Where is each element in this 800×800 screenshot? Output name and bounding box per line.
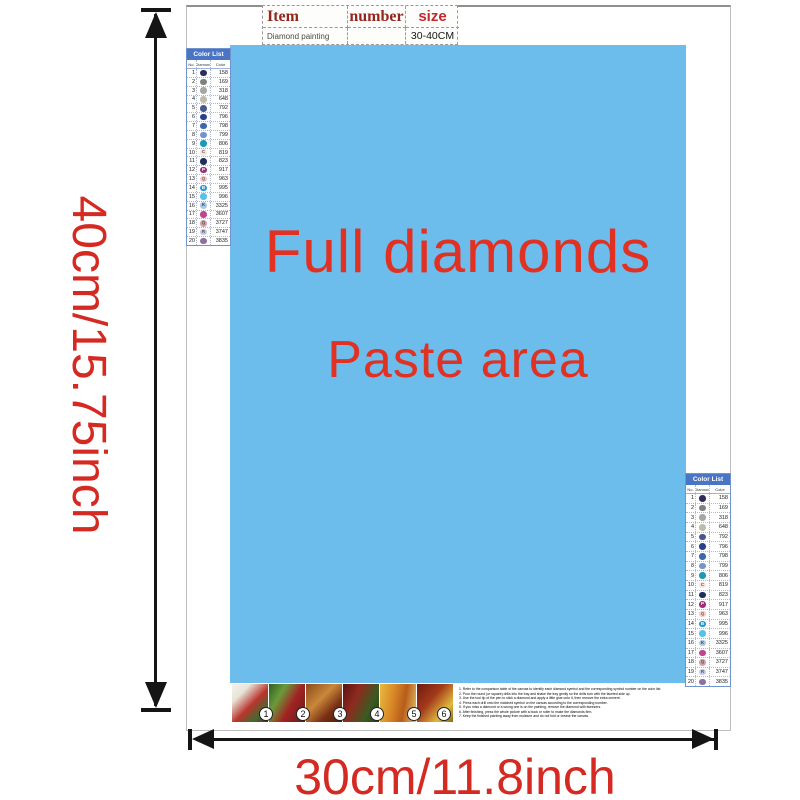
- color-list-row: 3318: [686, 513, 730, 523]
- dmc-color-code: 996: [211, 194, 230, 200]
- color-list-row: 6796: [187, 113, 230, 122]
- diamond-dot-icon: R: [699, 669, 706, 676]
- dmc-color-code: 3325: [211, 203, 230, 209]
- diamond-dot-icon: Q: [699, 659, 706, 666]
- diamond-dot-icon: [699, 650, 706, 657]
- color-row-number: 3: [187, 87, 197, 95]
- color-list-col-color: Color: [211, 60, 230, 68]
- diamond-color-swatch: [197, 104, 211, 112]
- dmc-color-code: 792: [211, 105, 230, 111]
- diamond-color-swatch: R: [696, 668, 710, 677]
- color-row-number: 12: [187, 166, 197, 174]
- color-row-number: 17: [187, 211, 197, 219]
- color-row-number: 7: [187, 122, 197, 130]
- diamond-dot-icon: B: [200, 185, 207, 192]
- diamond-dot-icon: [699, 495, 706, 502]
- dmc-color-code: 995: [710, 621, 730, 627]
- color-list-row: 3318: [187, 87, 230, 96]
- color-row-number: 15: [686, 629, 696, 638]
- color-row-number: 7: [686, 552, 696, 561]
- color-list-row: 15996: [187, 193, 230, 202]
- diamond-dot-icon: B: [699, 621, 706, 628]
- diamond-color-swatch: P: [197, 166, 211, 174]
- color-list-col-color: Color: [710, 485, 730, 493]
- color-list-row: 18Q3727: [187, 219, 230, 228]
- diamond-color-swatch: Q: [197, 175, 211, 183]
- diamond-dot-icon: [699, 592, 706, 599]
- dmc-color-code: 799: [710, 563, 730, 569]
- diamond-dot-icon: [200, 70, 207, 77]
- diamond-color-swatch: [696, 552, 710, 561]
- diamond-color-swatch: [197, 122, 211, 130]
- diamond-color-swatch: K: [197, 202, 211, 210]
- diamond-color-swatch: [696, 677, 710, 686]
- dmc-color-code: 648: [710, 524, 730, 530]
- horizontal-arrow-right-cap: [714, 729, 718, 750]
- paste-area-subtitle: Paste area: [230, 330, 686, 390]
- diamond-color-swatch: [197, 69, 211, 77]
- diamond-color-swatch: [696, 649, 710, 658]
- dmc-color-code: 963: [710, 611, 730, 617]
- vertical-arrow-line: [154, 14, 157, 706]
- color-list-row: 18Q3727: [686, 658, 730, 668]
- dmc-color-code: 169: [211, 79, 230, 85]
- color-list-col-no: No.: [187, 60, 197, 68]
- dmc-color-code: 798: [211, 123, 230, 129]
- step-thumbnail: 5: [380, 684, 416, 722]
- color-list-col-diamond: Diamond: [696, 485, 710, 493]
- diamond-color-swatch: [197, 87, 211, 95]
- color-list-row: 5792: [686, 533, 730, 543]
- diamond-dot-icon: [699, 553, 706, 560]
- dmc-color-code: 318: [211, 88, 230, 94]
- step-number-badge: 6: [437, 707, 451, 721]
- diamond-dot-icon: [200, 79, 207, 86]
- dmc-color-code: 3607: [710, 650, 730, 656]
- step-number-badge: 5: [407, 707, 421, 721]
- color-row-number: 5: [686, 533, 696, 542]
- color-row-number: 19: [686, 668, 696, 677]
- diamond-color-swatch: [197, 78, 211, 86]
- diamond-dot-icon: [699, 505, 706, 512]
- diamond-dot-icon: [699, 524, 706, 531]
- diamond-dot-icon: [699, 514, 706, 521]
- product-image: Full diamonds Paste area Item number siz…: [0, 0, 800, 800]
- diamond-color-swatch: [197, 140, 211, 148]
- dmc-color-code: 963: [211, 176, 230, 182]
- diamond-dot-icon: [200, 96, 207, 103]
- dmc-color-code: 3835: [211, 238, 230, 244]
- color-list-row: 2169: [686, 504, 730, 514]
- item-table-header-size: size: [406, 6, 459, 28]
- color-row-number: 12: [686, 600, 696, 609]
- diamond-color-swatch: C: [696, 581, 710, 590]
- color-list-row: 16K3325: [686, 639, 730, 649]
- step-thumbnail-strip: 123456: [232, 684, 453, 722]
- instruction-text-block: 1. Refer to the comparison table of the …: [459, 687, 668, 719]
- color-list-row: 9806: [686, 571, 730, 581]
- vertical-arrow-bottom-cap: [141, 708, 171, 712]
- color-list-row: 203835: [686, 677, 730, 686]
- color-list-row: 16K3325: [187, 202, 230, 211]
- color-list-row: 14B995: [686, 620, 730, 630]
- color-row-number: 4: [187, 96, 197, 104]
- diamond-color-swatch: K: [696, 639, 710, 648]
- diamond-color-swatch: Q: [696, 658, 710, 667]
- dmc-color-code: 792: [710, 534, 730, 540]
- color-row-number: 9: [686, 571, 696, 580]
- color-row-number: 16: [187, 202, 197, 210]
- step-thumbnail: 1: [232, 684, 268, 722]
- diamond-dot-icon: C: [699, 582, 706, 589]
- step-number-badge: 4: [370, 707, 384, 721]
- step-number-badge: 2: [296, 707, 310, 721]
- diamond-color-swatch: [696, 513, 710, 522]
- diamond-dot-icon: [200, 87, 207, 94]
- color-list-row: 203835: [187, 237, 230, 245]
- color-list-row: 173607: [187, 211, 230, 220]
- diamond-dot-icon: K: [699, 640, 706, 647]
- dmc-color-code: 169: [710, 505, 730, 511]
- color-list-row: 10C819: [187, 149, 230, 158]
- item-table-cell-item: Diamond painting: [263, 28, 348, 44]
- dmc-color-code: 798: [710, 553, 730, 559]
- dmc-color-code: 3727: [211, 220, 230, 226]
- diamond-dot-icon: [699, 679, 706, 686]
- color-list-col-no: No.: [686, 485, 696, 493]
- color-row-number: 11: [187, 157, 197, 165]
- color-row-number: 14: [686, 620, 696, 629]
- dmc-color-code: 917: [710, 602, 730, 608]
- color-list-row: 7798: [686, 552, 730, 562]
- diamond-color-swatch: [696, 562, 710, 571]
- diamond-color-swatch: Q: [696, 610, 710, 619]
- item-table-header-item: Item: [263, 6, 348, 28]
- color-list-row: 9806: [187, 140, 230, 149]
- dmc-color-code: 917: [211, 167, 230, 173]
- diamond-dot-icon: Q: [200, 220, 207, 227]
- color-row-number: 18: [686, 658, 696, 667]
- item-table-header-number: number: [348, 6, 406, 28]
- color-row-number: 10: [686, 581, 696, 590]
- instruction-line: 1. Refer to the comparison table of the …: [459, 687, 668, 692]
- color-row-number: 20: [187, 237, 197, 245]
- color-row-number: 4: [686, 523, 696, 532]
- color-list-title: Color List: [686, 474, 730, 485]
- dmc-color-code: 996: [710, 631, 730, 637]
- diamond-dot-icon: [699, 534, 706, 541]
- color-list-row: 12P917: [686, 600, 730, 610]
- step-number-badge: 3: [333, 707, 347, 721]
- dmc-color-code: 823: [710, 592, 730, 598]
- step-thumbnail: 4: [343, 684, 379, 722]
- horizontal-arrow-line: [196, 738, 714, 741]
- step-thumbnail: 2: [269, 684, 305, 722]
- diamond-dot-icon: [699, 572, 706, 579]
- color-row-number: 14: [187, 184, 197, 192]
- diamond-dot-icon: R: [200, 229, 207, 236]
- dmc-color-code: 318: [710, 515, 730, 521]
- diamond-dot-icon: [200, 238, 207, 245]
- color-list-row: 7798: [187, 122, 230, 131]
- diamond-dot-icon: [200, 158, 207, 165]
- diamond-dot-icon: [200, 114, 207, 121]
- diamond-dot-icon: [699, 630, 706, 637]
- diamond-color-swatch: [197, 113, 211, 121]
- color-row-number: 8: [187, 131, 197, 139]
- diamond-dot-icon: [200, 140, 207, 147]
- color-row-number: 16: [686, 639, 696, 648]
- diamond-dot-icon: P: [699, 601, 706, 608]
- color-row-number: 10: [187, 149, 197, 157]
- diamond-dot-icon: [200, 123, 207, 130]
- height-dimension-label: 40cm/15.75inch: [60, 165, 116, 565]
- dmc-color-code: 3835: [710, 679, 730, 685]
- diamond-dot-icon: [699, 563, 706, 570]
- color-list-title: Color List: [187, 49, 230, 60]
- color-list-columns: No. Diamond Color: [187, 60, 230, 69]
- color-list-left: Color List No. Diamond Color 11582169331…: [186, 48, 231, 246]
- paste-area-title: Full diamonds: [230, 45, 686, 286]
- diamond-color-swatch: [696, 542, 710, 551]
- dmc-color-code: 3325: [710, 640, 730, 646]
- diamond-color-swatch: [197, 131, 211, 139]
- color-list-row: 10C819: [686, 581, 730, 591]
- dmc-color-code: 796: [211, 114, 230, 120]
- diamond-dot-icon: [699, 543, 706, 550]
- dmc-color-code: 823: [211, 158, 230, 164]
- diamond-dot-icon: C: [200, 149, 207, 156]
- color-row-number: 1: [686, 494, 696, 503]
- color-list-right: Color List No. Diamond Color 11582169331…: [685, 473, 731, 687]
- dmc-color-code: 796: [710, 544, 730, 550]
- diamond-dot-icon: Q: [200, 176, 207, 183]
- diamond-color-swatch: [197, 237, 211, 245]
- color-list-row: 2169: [187, 78, 230, 87]
- arrow-down-icon: [145, 682, 167, 708]
- dmc-color-code: 819: [211, 150, 230, 156]
- color-list-rows: 11582169331846485792679677988799980610C8…: [686, 494, 730, 686]
- item-table-cell-size: 30-40CM: [406, 28, 459, 44]
- color-list-row: 8799: [686, 562, 730, 572]
- color-row-number: 6: [187, 113, 197, 121]
- diamond-dot-icon: [200, 211, 207, 218]
- diamond-color-swatch: [197, 211, 211, 219]
- diamond-color-swatch: Q: [197, 219, 211, 227]
- item-info-table: Item number size Diamond painting 30-40C…: [262, 5, 458, 45]
- instruction-line: 7. Keep the finished painting away from …: [459, 714, 668, 719]
- color-list-row: 11823: [686, 591, 730, 601]
- dmc-color-code: 3747: [211, 229, 230, 235]
- diamond-dot-icon: Q: [699, 611, 706, 618]
- diamond-dot-icon: [200, 105, 207, 112]
- color-list-row: 5792: [187, 104, 230, 113]
- color-row-number: 13: [686, 610, 696, 619]
- diamond-color-swatch: [197, 96, 211, 104]
- diamond-color-swatch: P: [696, 600, 710, 609]
- dmc-color-code: 158: [211, 70, 230, 76]
- color-list-row: 173607: [686, 649, 730, 659]
- dmc-color-code: 3747: [710, 669, 730, 675]
- diamond-color-swatch: [696, 591, 710, 600]
- diamond-color-swatch: [696, 571, 710, 580]
- dmc-color-code: 819: [710, 582, 730, 588]
- color-list-row: 1158: [686, 494, 730, 504]
- color-list-row: 4648: [686, 523, 730, 533]
- color-list-row: 8799: [187, 131, 230, 140]
- step-thumbnail: 6: [417, 684, 453, 722]
- diamond-dot-icon: P: [200, 167, 207, 174]
- diamond-color-swatch: [696, 523, 710, 532]
- diamond-color-swatch: C: [197, 149, 211, 157]
- color-list-row: 19R3747: [686, 668, 730, 678]
- diamond-color-swatch: [197, 157, 211, 165]
- arrow-right-icon: [692, 729, 714, 749]
- color-row-number: 11: [686, 591, 696, 600]
- color-row-number: 9: [187, 140, 197, 148]
- diamond-dot-icon: K: [200, 202, 207, 209]
- color-list-row: 4648: [187, 96, 230, 105]
- paste-area: Full diamonds Paste area: [230, 45, 686, 683]
- diamond-dot-icon: [200, 132, 207, 139]
- color-list-row: 11823: [187, 157, 230, 166]
- dmc-color-code: 799: [211, 132, 230, 138]
- color-row-number: 20: [686, 677, 696, 686]
- dmc-color-code: 806: [710, 573, 730, 579]
- dmc-color-code: 806: [211, 141, 230, 147]
- color-row-number: 2: [686, 504, 696, 513]
- color-list-row: 12P917: [187, 166, 230, 175]
- color-list-row: 6796: [686, 542, 730, 552]
- item-table-cell-number: [348, 28, 406, 44]
- diamond-color-swatch: B: [696, 620, 710, 629]
- diamond-color-swatch: B: [197, 184, 211, 192]
- step-number-badge: 1: [259, 707, 273, 721]
- color-row-number: 15: [187, 193, 197, 201]
- color-row-number: 17: [686, 649, 696, 658]
- dmc-color-code: 3607: [211, 211, 230, 217]
- color-list-rows: 11582169331846485792679677988799980610C8…: [187, 69, 230, 245]
- diamond-color-swatch: [696, 629, 710, 638]
- color-list-row: 13Q963: [686, 610, 730, 620]
- diamond-color-swatch: R: [197, 228, 211, 236]
- diamond-dot-icon: [200, 193, 207, 200]
- color-list-row: 1158: [187, 69, 230, 78]
- dmc-color-code: 648: [211, 96, 230, 102]
- color-list-row: 13Q963: [187, 175, 230, 184]
- color-list-columns: No. Diamond Color: [686, 485, 730, 494]
- dmc-color-code: 3727: [710, 659, 730, 665]
- color-row-number: 8: [686, 562, 696, 571]
- color-row-number: 6: [686, 542, 696, 551]
- step-thumbnail: 3: [306, 684, 342, 722]
- diamond-color-swatch: [696, 494, 710, 503]
- color-row-number: 18: [187, 219, 197, 227]
- color-row-number: 13: [187, 175, 197, 183]
- color-list-row: 19R3747: [187, 228, 230, 237]
- diamond-color-swatch: [197, 193, 211, 201]
- color-row-number: 3: [686, 513, 696, 522]
- color-row-number: 1: [187, 69, 197, 77]
- color-row-number: 2: [187, 78, 197, 86]
- color-row-number: 5: [187, 104, 197, 112]
- color-list-col-diamond: Diamond: [197, 60, 211, 68]
- width-dimension-label: 30cm/11.8inch: [205, 748, 705, 800]
- diamond-color-swatch: [696, 504, 710, 513]
- dmc-color-code: 995: [211, 185, 230, 191]
- color-list-row: 15996: [686, 629, 730, 639]
- color-row-number: 19: [187, 228, 197, 236]
- color-list-row: 14B995: [187, 184, 230, 193]
- diamond-color-swatch: [696, 533, 710, 542]
- dmc-color-code: 158: [710, 495, 730, 501]
